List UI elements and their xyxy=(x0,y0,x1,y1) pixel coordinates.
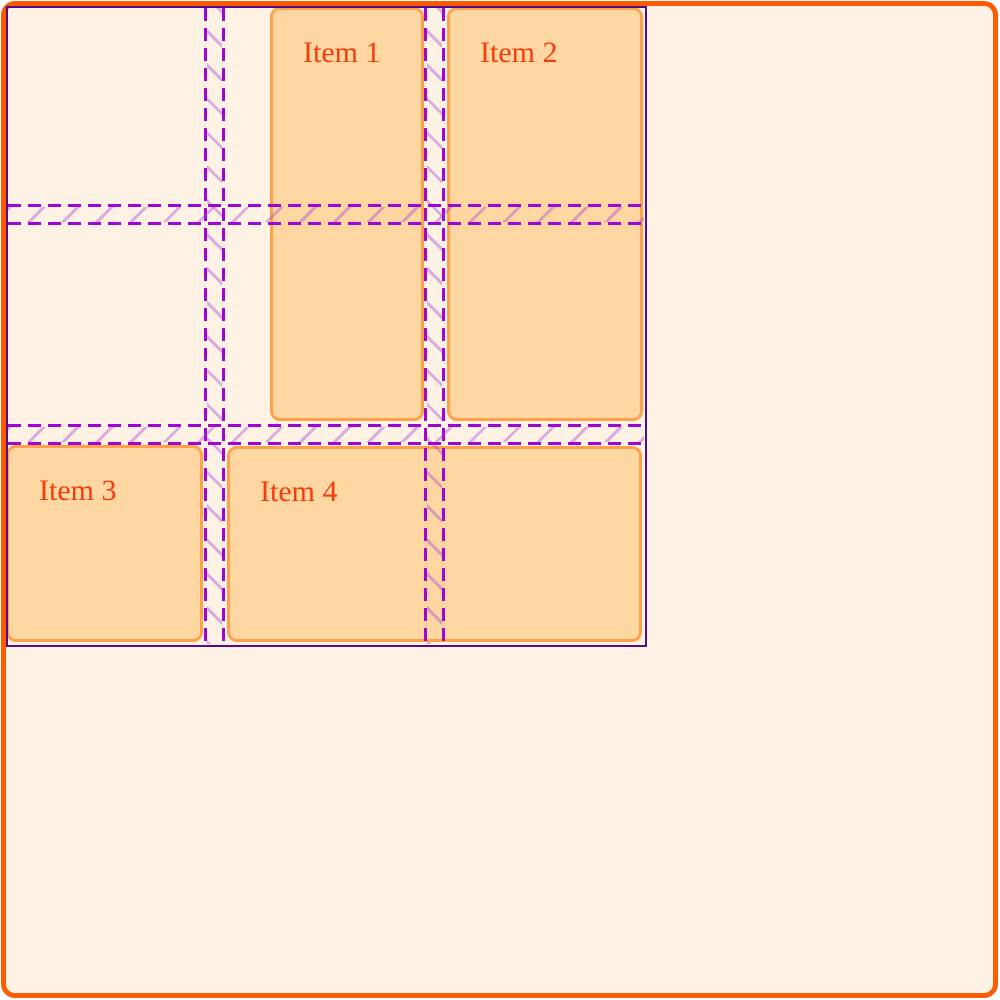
grid-item-4-label: Item 4 xyxy=(260,475,337,508)
grid-item-3: Item 3 xyxy=(6,445,203,642)
grid-item-1: Item 1 xyxy=(270,7,424,421)
grid-item-2: Item 2 xyxy=(447,7,643,421)
grid-item-4: Item 4 xyxy=(227,446,642,642)
page-canvas: Item 1 Item 2 Item 3 Item 4 xyxy=(0,0,1000,1000)
grid-item-2-label: Item 2 xyxy=(480,36,557,69)
grid-item-3-label: Item 3 xyxy=(39,474,116,507)
grid-item-1-label: Item 1 xyxy=(303,36,380,69)
